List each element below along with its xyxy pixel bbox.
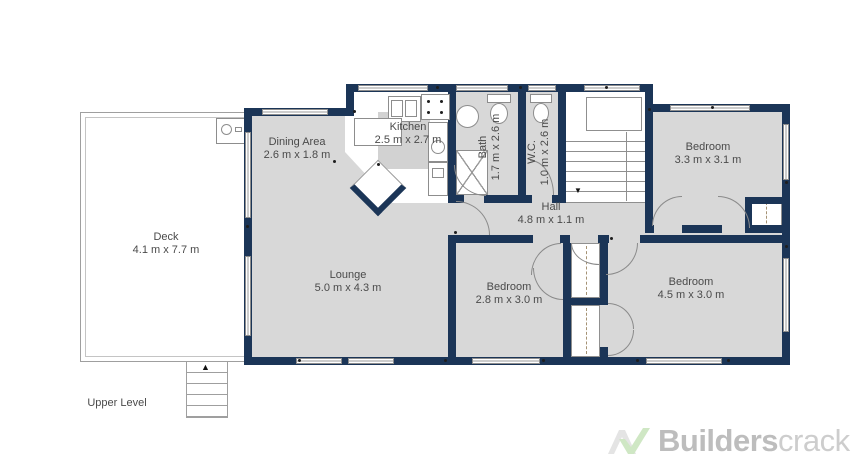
stove-burner-dot (440, 111, 443, 114)
room-dims: 4.8 m x 1.1 m (491, 214, 611, 227)
kitchen-appliance-symbol (432, 168, 444, 178)
stove-burner-dot (427, 111, 430, 114)
window (358, 85, 428, 91)
plan-dot (648, 108, 651, 111)
room-name: Bedroom (631, 276, 751, 289)
plan-dot (454, 231, 457, 234)
stairs-landing (586, 97, 642, 131)
room-name: Bedroom (449, 281, 569, 294)
room-dims: 2.6 m x 1.8 m (237, 149, 357, 162)
window (783, 124, 789, 180)
plan-dot (636, 359, 639, 362)
room-name: Bath (477, 92, 490, 202)
wall (448, 235, 533, 243)
room-name: Deck (106, 231, 226, 244)
room-dims: 1.7 m x 2.6 m (490, 92, 503, 202)
room-dims: 1.0 m x 2.6 m (539, 97, 552, 207)
room-label-bath: Bath 1.7 m x 2.6 m (477, 92, 507, 202)
room-label-bedroom-1: Bedroom 3.3 m x 3.1 m (648, 141, 768, 167)
room-name: Lounge (288, 269, 408, 282)
plan-dot (727, 359, 730, 362)
room-name: W.C. (526, 97, 539, 207)
level-label-text: Upper Level (67, 397, 167, 410)
window (646, 358, 722, 364)
wall (563, 298, 608, 305)
closet-symbol (571, 305, 600, 357)
room-label-lounge: Lounge 5.0 m x 4.3 m (288, 269, 408, 295)
plan-dot (610, 237, 613, 240)
window (348, 358, 394, 364)
deck-grill-knob (235, 127, 242, 132)
floor-plan-page: ▲ ▼ (0, 0, 853, 469)
room-name: Bedroom (648, 141, 768, 154)
window (456, 85, 508, 91)
room-label-dining: Dining Area 2.6 m x 1.8 m (237, 136, 357, 162)
wall (598, 235, 609, 243)
wall (682, 225, 722, 233)
wall (518, 92, 526, 195)
deck-grill-burner (221, 124, 232, 135)
window (528, 85, 556, 91)
window (245, 256, 251, 336)
room-dims: 4.1 m x 7.7 m (106, 244, 226, 257)
window (783, 258, 789, 332)
logo-text-light: crack (778, 423, 850, 458)
stove-symbol (421, 94, 450, 120)
plan-dot (711, 106, 714, 109)
wall (752, 225, 782, 233)
wall (645, 225, 654, 233)
plan-dot (785, 245, 788, 248)
room-dims: 2.8 m x 3.0 m (449, 294, 569, 307)
room-label-bedroom-2: Bedroom 2.8 m x 3.0 m (449, 281, 569, 307)
level-label: Upper Level (67, 397, 167, 410)
wall (640, 235, 782, 243)
window (262, 109, 328, 115)
plan-dot (298, 359, 301, 362)
plan-dot (246, 225, 249, 228)
builderscrack-logo-text: Builderscrack (658, 423, 850, 459)
plan-dot (605, 86, 608, 89)
plan-dot (436, 86, 439, 89)
wall (600, 347, 608, 357)
window (296, 358, 342, 364)
room-dims: 4.5 m x 3.0 m (631, 289, 751, 302)
plan-dot (377, 163, 380, 166)
stairs-up-arrow-icon: ▲ (201, 363, 210, 372)
room-name: Kitchen (348, 121, 468, 134)
plan-dot (519, 86, 522, 89)
plan-dot (785, 181, 788, 184)
plan-dot (542, 359, 545, 362)
builderscrack-logo: Builderscrack (606, 423, 850, 459)
window (670, 105, 750, 111)
room-dims: 2.5 m x 2.7 m (348, 134, 468, 147)
room-label-wc: W.C. 1.0 m x 2.6 m (526, 97, 556, 207)
room-dims: 3.3 m x 3.1 m (648, 154, 768, 167)
room-label-deck: Deck 4.1 m x 7.7 m (106, 231, 226, 257)
plan-dot (353, 110, 356, 113)
plan-dot (444, 359, 447, 362)
room-dims: 5.0 m x 4.3 m (288, 282, 408, 295)
kitchen-sink-bowl (391, 100, 403, 117)
room-name: Hall (491, 201, 611, 214)
room-name: Dining Area (237, 136, 357, 149)
logo-text-bold: Builders (658, 423, 778, 458)
window (472, 358, 540, 364)
stairs-down-arrow-icon: ▼ (574, 186, 582, 195)
room-label-kitchen: Kitchen 2.5 m x 2.7 m (348, 121, 468, 147)
kitchen-sink-bowl (405, 100, 417, 117)
builderscrack-logo-mark-icon (606, 423, 650, 459)
room-label-hall: Hall 4.8 m x 1.1 m (491, 201, 611, 227)
stove-burner-dot (427, 100, 430, 103)
stove-burner-dot (440, 100, 443, 103)
window (584, 85, 640, 91)
wall (560, 235, 570, 243)
wall (558, 92, 566, 203)
stairs-divider-line (626, 132, 627, 201)
room-label-bedroom-3: Bedroom 4.5 m x 3.0 m (631, 276, 751, 302)
